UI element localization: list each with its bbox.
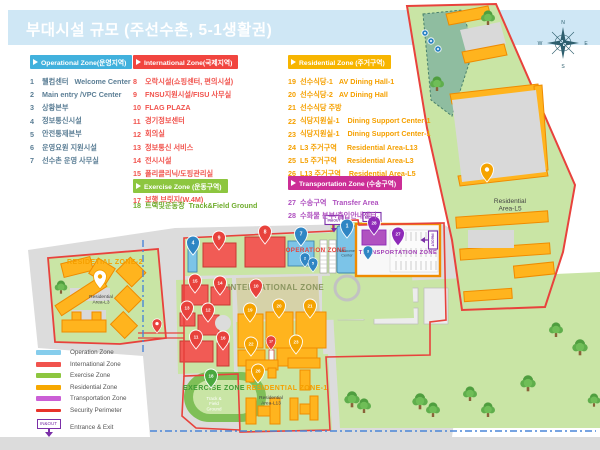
- facility-number: 20: [288, 90, 300, 99]
- facility-list-item: 22식당지원실-1 Dining Support Center-1: [288, 115, 448, 128]
- zone-header-label: Exercise Zone (운동구역): [144, 181, 222, 191]
- map-area-label: ResidentialArea-L3: [89, 294, 113, 306]
- facility-number: 13: [133, 143, 145, 152]
- facility-label: Main entry /VPC Center: [42, 90, 121, 99]
- facility-number: 19: [288, 77, 300, 86]
- legend-label: Exercise Zone: [70, 372, 110, 379]
- chevron-right-icon: [33, 59, 38, 65]
- courtyard: [468, 230, 514, 248]
- compass-e: E: [584, 41, 588, 47]
- facility-list-item: 24L3 주거구역 Residential Area-L13: [288, 141, 448, 154]
- facility-number: 27: [288, 198, 300, 207]
- transportation-zone-header: Transportation Zone (수송구역): [288, 176, 402, 190]
- facility-number: 10: [133, 103, 145, 112]
- facility-list-item: 10FLAG PLAZA: [133, 101, 285, 114]
- facility-label: 운영요원 지원시설: [42, 143, 97, 153]
- map-area-label: WelcomeCenter: [339, 249, 355, 257]
- facility-list-item: 27수송구역 Transfer Area: [288, 196, 448, 209]
- facility-label: 정보통신시설: [42, 116, 82, 126]
- facility-label: 선수식당-2 AV Dining Hall: [300, 90, 388, 100]
- svg-text:IN&OUT: IN&OUT: [431, 234, 435, 248]
- legend-item: Exercise Zone: [36, 372, 126, 379]
- svg-text:19: 19: [247, 308, 253, 313]
- facility-label: 식당지원실-1 Dining Support Center-1: [300, 129, 431, 139]
- compass: N S W E: [538, 20, 589, 70]
- facility-label: 전시시설: [145, 156, 171, 166]
- facility-list-item: 18트랙및운동장 Track&Field Ground: [133, 199, 285, 212]
- facility-list-item: 13정보통신 서비스: [133, 141, 285, 154]
- transportation-zone-list: Transportation Zone (수송구역)27수송구역 Transfe…: [288, 176, 448, 222]
- zone-color-swatch: [36, 373, 61, 378]
- legend-item: IN&OUTEntrance & Exit: [36, 419, 126, 437]
- international-zone-header: International Zone(국제지역): [133, 55, 238, 69]
- facility-number: 23: [288, 130, 300, 139]
- perimeter-line-swatch: [36, 409, 61, 412]
- slide-canvas: 부대시설 규모 (주선수촌, 5-1생활권): [0, 0, 600, 450]
- facility-number: 25: [288, 156, 300, 165]
- svg-text:13: 13: [184, 306, 190, 311]
- map-zone-label: INTERNATIONAL ZONE: [228, 283, 324, 292]
- svg-text:4: 4: [192, 241, 195, 247]
- facility-number: 18: [133, 201, 145, 210]
- svg-text:15: 15: [192, 279, 198, 284]
- svg-text:26: 26: [255, 369, 261, 374]
- facility-list-item: 21선수식당 주방: [288, 101, 448, 114]
- entrance-exit-icon: IN&OUT: [36, 419, 61, 437]
- facility-number: 4: [30, 117, 42, 126]
- facility-label: 선수식당-1 AV Dining Hall-1: [300, 77, 394, 87]
- facility-label: FNSU지원시설/FISU 사무실: [145, 90, 231, 100]
- svg-text:10: 10: [253, 284, 259, 289]
- facility-label: 트랙및운동장 Track&Field Ground: [145, 201, 257, 211]
- facility-label: L5 주거구역 Residential Area-L3: [300, 156, 414, 166]
- zone-header-label: Operational Zone(운영지역): [41, 57, 126, 67]
- legend-label: Entrance & Exit: [70, 424, 113, 431]
- legend-label: Transportation Zone: [70, 395, 126, 402]
- facility-label: 오락시설(쇼핑센터, 편의시설): [145, 77, 233, 87]
- facility-list-item: 19선수식당-1 AV Dining Hall-1: [288, 75, 448, 88]
- chevron-right-icon: [136, 183, 141, 189]
- chevron-right-icon: [291, 180, 296, 186]
- facility-number: 11: [133, 117, 145, 126]
- facility-label: 웰컴센터 Welcome Center: [42, 77, 131, 87]
- facility-number: 9: [133, 90, 145, 99]
- facility-number: 28: [288, 211, 300, 220]
- legend-item: Operation Zone: [36, 349, 126, 356]
- legend-item: International Zone: [36, 361, 126, 368]
- facility-number: 3: [30, 103, 42, 112]
- facility-number: 5: [30, 130, 42, 139]
- compass-n: N: [561, 20, 565, 26]
- facility-list-item: 11경기정보센터: [133, 115, 285, 128]
- operational-zone-header: Operational Zone(운영지역): [30, 55, 132, 69]
- facility-number: 2: [30, 90, 42, 99]
- svg-text:16: 16: [220, 336, 226, 341]
- svg-text:20: 20: [276, 304, 282, 309]
- svg-text:7: 7: [300, 232, 303, 238]
- facility-list-item: 9FNSU지원시설/FISU 사무실: [133, 88, 285, 101]
- legend-item: Security Perimeter: [36, 407, 126, 414]
- map-legend: Operation ZoneInternational ZoneExercise…: [36, 349, 126, 441]
- legend-label: Residential Zone: [70, 384, 117, 391]
- zone-color-swatch: [36, 362, 61, 367]
- facility-label: 수송구역 Transfer Area: [300, 198, 379, 208]
- svg-text:22: 22: [248, 342, 254, 347]
- facility-number: 12: [133, 130, 145, 139]
- facility-list-item: 12회의실: [133, 128, 285, 141]
- map-zone-label: RESIDETIAL ZONE-2: [67, 259, 143, 266]
- legend-label: International Zone: [70, 361, 121, 368]
- svg-text:21: 21: [307, 304, 313, 309]
- legend-item: Transportation Zone: [36, 395, 126, 402]
- facility-number: 15: [133, 169, 145, 178]
- compass-s: S: [561, 64, 565, 70]
- legend-label: Operation Zone: [70, 349, 114, 356]
- facility-label: L3 주거구역 Residential Area-L13: [300, 143, 418, 153]
- legend-item: Residential Zone: [36, 384, 126, 391]
- svg-text:11: 11: [194, 335, 199, 340]
- facility-label: 경기정보센터: [145, 116, 185, 126]
- svg-text:14: 14: [217, 281, 223, 286]
- exercise-zone-list: Exercise Zone (운동구역)18트랙및운동장 Track&Field…: [133, 179, 285, 212]
- facility-list-item: 25L5 주거구역 Residential Area-L3: [288, 154, 448, 167]
- zone-header-label: Transportation Zone (수송구역): [299, 178, 396, 188]
- facility-number: 6: [30, 143, 42, 152]
- facility-label: 선수식당 주방: [300, 103, 342, 113]
- facility-label: 정보통신 서비스: [145, 143, 193, 153]
- chevron-right-icon: [136, 59, 141, 65]
- facility-list-item: 20선수식당-2 AV Dining Hall: [288, 88, 448, 101]
- facility-label: 회의실: [145, 129, 165, 139]
- zone-color-swatch: [36, 350, 61, 355]
- facility-number: 22: [288, 117, 300, 126]
- facility-label: 안전통제본부: [42, 129, 82, 139]
- courtyard: [452, 90, 546, 182]
- map-zone-label: OPERATION ZONE: [286, 247, 347, 254]
- facility-number: 24: [288, 143, 300, 152]
- zone-color-swatch: [36, 385, 61, 390]
- facility-number: 8: [133, 77, 145, 86]
- facility-number: 1: [30, 77, 42, 86]
- zone-header-label: International Zone(국제지역): [144, 57, 232, 67]
- facility-label: 폴리클리닉/도핑관리실: [145, 169, 213, 179]
- svg-text:17: 17: [269, 339, 273, 343]
- facility-label: 선수촌 운영 사무실: [42, 156, 99, 166]
- map-zone-label: RESIDENTIAL ZONE-1: [246, 385, 327, 392]
- svg-text:8: 8: [264, 230, 267, 236]
- svg-text:23: 23: [293, 340, 299, 345]
- facility-label: 식당지원실-1 Dining Support Center-1: [300, 116, 431, 126]
- svg-text:9: 9: [218, 236, 221, 242]
- facility-list-item: 28수화물 본부/출입안내센터: [288, 209, 448, 222]
- facility-label: 수화물 본부/출입안내센터: [300, 211, 377, 221]
- svg-text:27: 27: [395, 232, 401, 237]
- facility-label: 상황본부: [42, 103, 68, 113]
- map-area-label: ResidentialArea-L13: [259, 395, 283, 407]
- chevron-right-icon: [291, 59, 296, 65]
- compass-w: W: [538, 41, 543, 47]
- facility-list-item: 8오락시설(쇼핑센터, 편의시설): [133, 75, 285, 88]
- zone-header-label: Residential Zone (주거구역): [299, 57, 385, 67]
- facility-number: 14: [133, 156, 145, 165]
- svg-text:18: 18: [208, 374, 214, 379]
- legend-label: Security Perimeter: [70, 407, 122, 414]
- courtyard-circle: [215, 315, 231, 331]
- svg-text:1: 1: [346, 224, 349, 230]
- exercise-zone-header: Exercise Zone (운동구역): [133, 179, 228, 193]
- facility-list-item: 14전시시설: [133, 154, 285, 167]
- facility-number: 7: [30, 156, 42, 165]
- residential-zone-header: Residential Zone (주거구역): [288, 55, 391, 69]
- service-building: [424, 288, 448, 324]
- svg-text:12: 12: [205, 308, 211, 313]
- zone-color-swatch: [36, 396, 61, 401]
- map-zone-label: EXERCISE ZONE: [183, 385, 245, 392]
- facility-list-item: 23식당지원실-1 Dining Support Center-1: [288, 128, 448, 141]
- facility-label: FLAG PLAZA: [145, 103, 191, 112]
- facility-number: 21: [288, 103, 300, 112]
- residential-zone-list: Residential Zone (주거구역)19선수식당-1 AV Dinin…: [288, 55, 448, 181]
